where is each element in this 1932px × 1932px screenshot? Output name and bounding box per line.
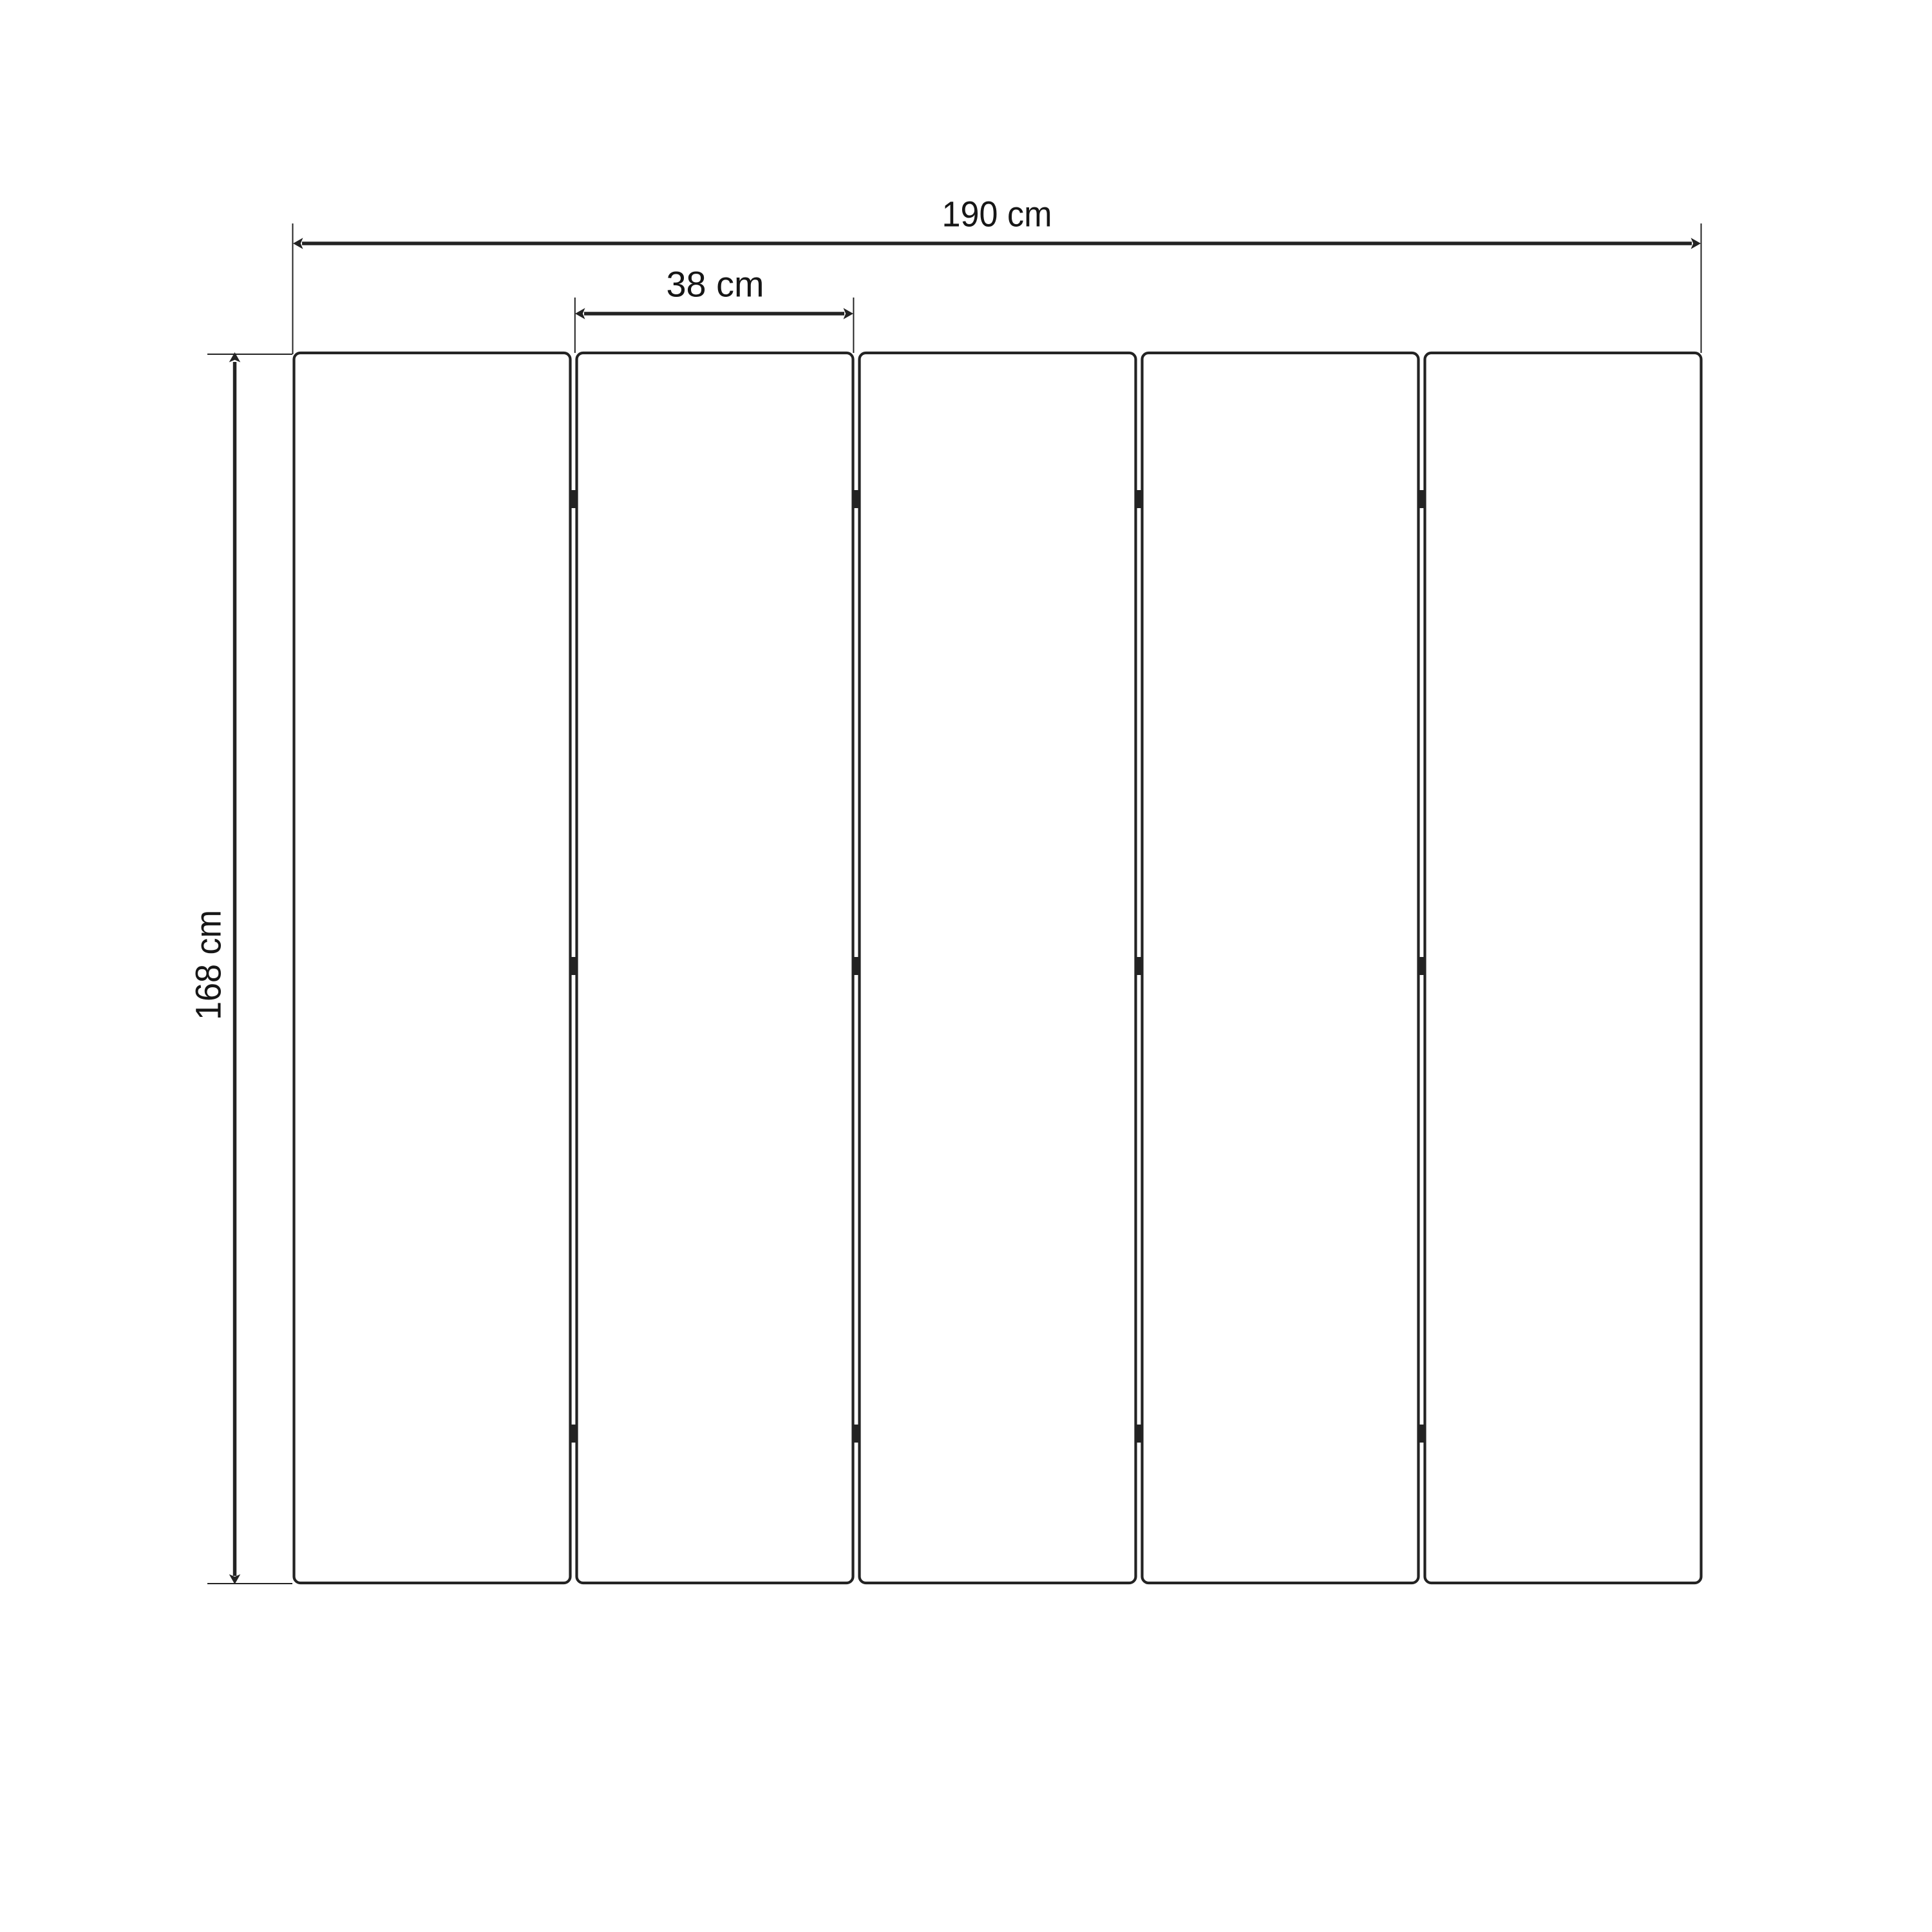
svg-text:190 cm: 190 cm [942,194,1052,234]
svg-text:38 cm: 38 cm [667,264,764,305]
svg-text:168 cm: 168 cm [188,910,229,1020]
